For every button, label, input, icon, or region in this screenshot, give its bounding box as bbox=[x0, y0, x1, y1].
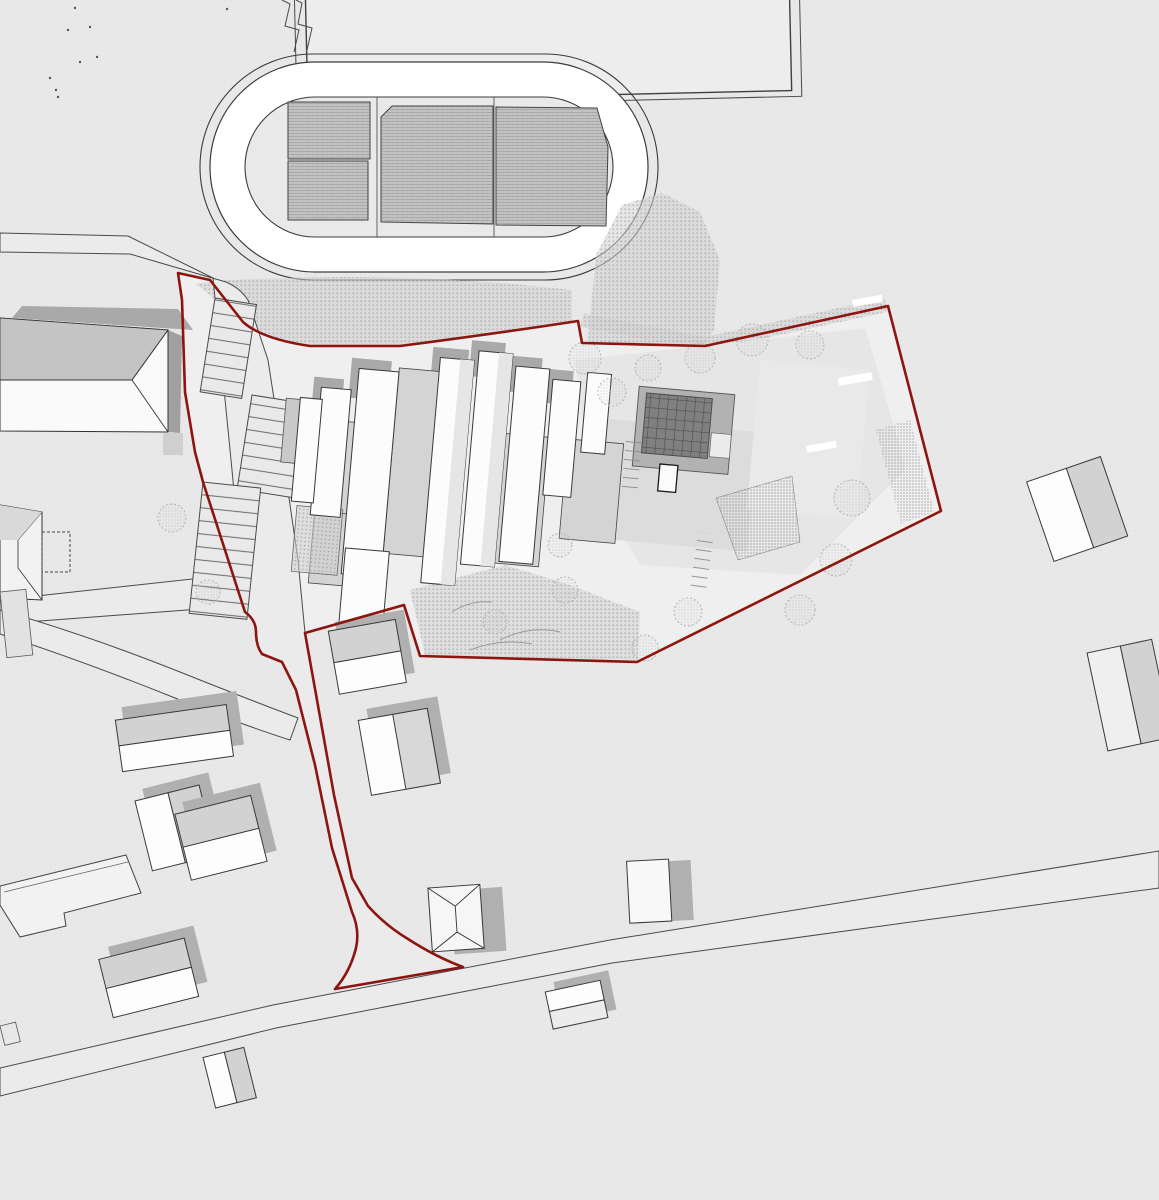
house bbox=[627, 858, 694, 923]
court bbox=[496, 107, 608, 226]
court bbox=[288, 102, 370, 159]
hip-roof-house bbox=[428, 883, 507, 956]
tree bbox=[548, 533, 572, 557]
tree bbox=[552, 577, 578, 603]
hall-shadow-east bbox=[168, 330, 182, 433]
tree bbox=[834, 480, 870, 516]
tree bbox=[736, 324, 768, 356]
running-track bbox=[200, 54, 658, 280]
small-structure bbox=[658, 464, 678, 492]
solar-panel-roof bbox=[632, 386, 735, 474]
tree bbox=[158, 504, 186, 532]
tree bbox=[796, 331, 824, 359]
court bbox=[381, 106, 493, 224]
hall-shadow-corner bbox=[163, 433, 183, 455]
house bbox=[357, 696, 453, 795]
tree bbox=[635, 355, 661, 381]
roof-hatch bbox=[709, 433, 731, 459]
site-plan-canvas bbox=[0, 0, 1159, 1200]
tree bbox=[196, 580, 220, 604]
tree bbox=[598, 378, 626, 406]
sports-courts bbox=[288, 102, 608, 226]
tree bbox=[674, 598, 702, 626]
tree bbox=[569, 342, 601, 374]
roof-white bbox=[627, 859, 672, 923]
solar-array bbox=[641, 393, 712, 459]
court bbox=[288, 161, 368, 220]
tree bbox=[685, 343, 715, 373]
tree bbox=[785, 595, 815, 625]
site-plan-page bbox=[0, 0, 1159, 1200]
tree bbox=[820, 544, 852, 576]
tree bbox=[483, 610, 507, 634]
